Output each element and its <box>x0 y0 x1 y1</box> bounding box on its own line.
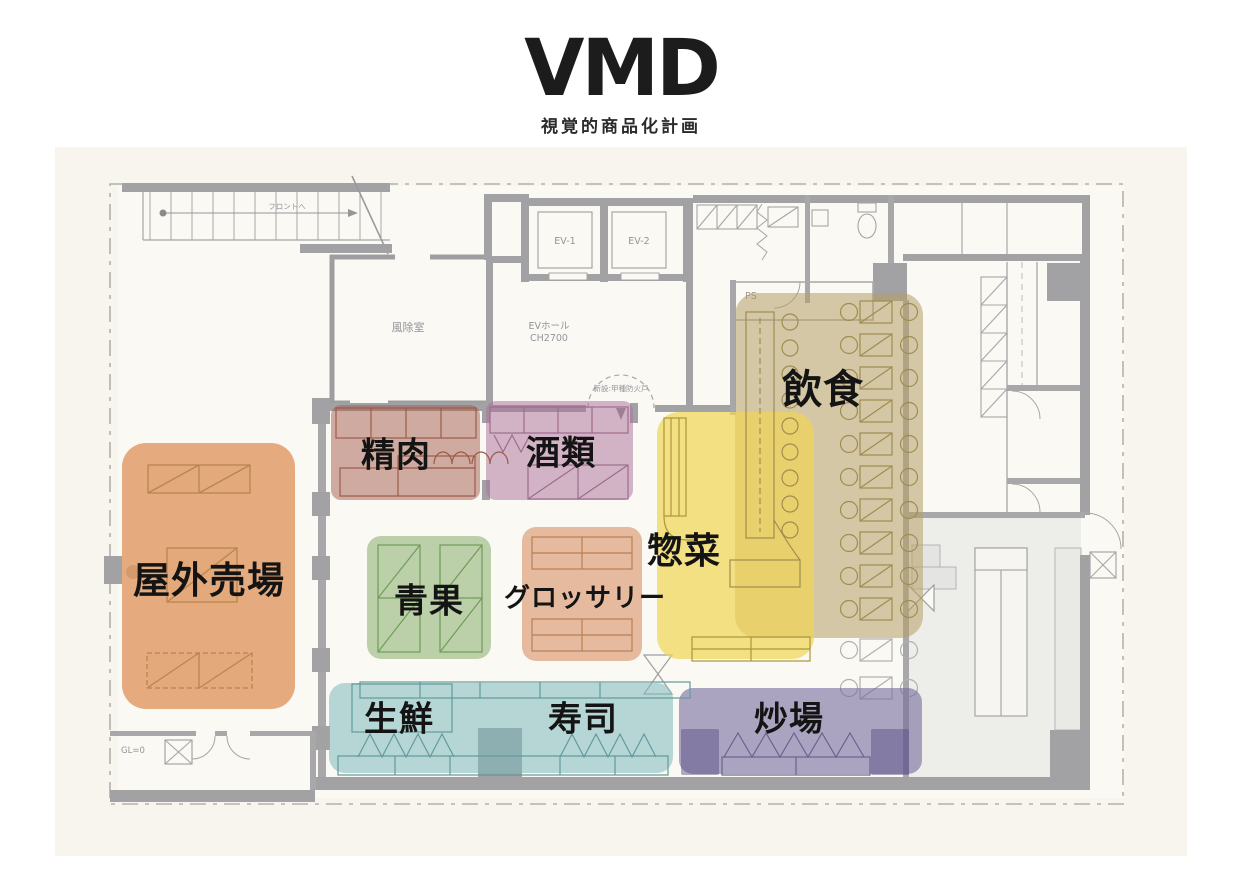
page-subtitle: 視覚的商品化計画 <box>0 112 1242 137</box>
plan-background-panel <box>55 147 1187 856</box>
vmd-floorplan-page: VMD 視覚的商品化計画 <box>0 0 1242 882</box>
page-title: VMD <box>0 30 1242 108</box>
title-block: VMD 視覚的商品化計画 <box>0 30 1242 137</box>
